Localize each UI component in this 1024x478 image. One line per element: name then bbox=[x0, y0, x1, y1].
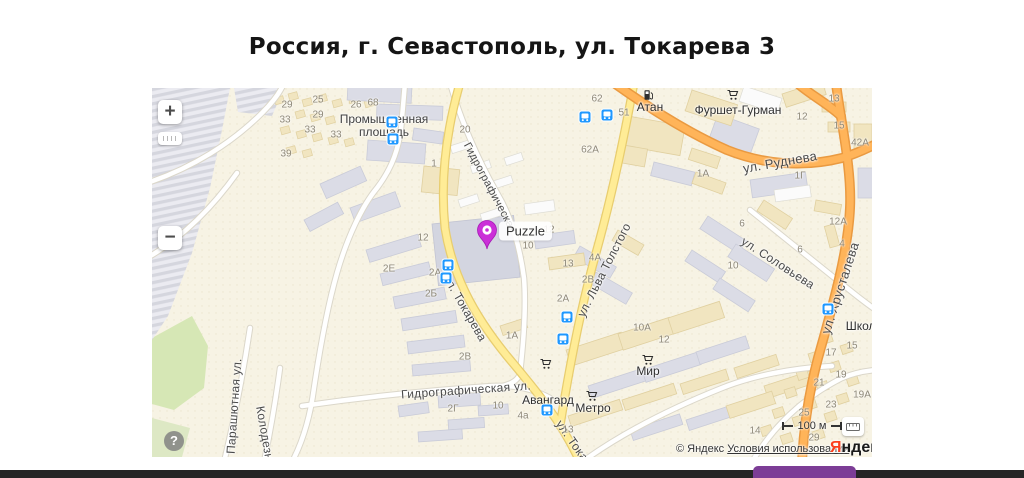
ruler-button[interactable] bbox=[842, 417, 864, 436]
poi-label[interactable]: Школа bbox=[846, 319, 872, 333]
house-number: 13 bbox=[828, 94, 839, 105]
cart-icon[interactable] bbox=[727, 90, 739, 101]
house-number: 4А bbox=[589, 253, 601, 264]
place-label: Промышленная площадь bbox=[340, 113, 429, 139]
bus-stop-icon[interactable] bbox=[541, 404, 554, 417]
street-label: ул. Льва Толстого bbox=[574, 221, 633, 320]
bus-stop-icon[interactable] bbox=[561, 311, 574, 324]
poi-label[interactable]: Атан bbox=[637, 100, 663, 114]
zoom-in-button[interactable]: + bbox=[158, 100, 182, 124]
house-number: 6 bbox=[797, 245, 803, 256]
house-number: 15 bbox=[833, 121, 844, 132]
bus-stop-icon[interactable] bbox=[387, 133, 400, 146]
attribution: © Яндекс Условия использования bbox=[676, 443, 849, 455]
bus-stop-icon[interactable] bbox=[440, 272, 453, 285]
bus-stop-icon[interactable] bbox=[822, 303, 835, 316]
yandex-logo-first-letter: Я bbox=[830, 439, 842, 456]
map[interactable]: ул. Рудневаул. Хрусталеваул. Соловьеваул… bbox=[152, 88, 872, 457]
house-number: 25 bbox=[798, 408, 809, 419]
copyright-text: © Яндекс bbox=[676, 443, 724, 455]
house-number: 1Г bbox=[795, 171, 806, 182]
zoom-level-indicator[interactable] bbox=[158, 132, 182, 145]
house-number: 29 bbox=[281, 100, 292, 111]
house-number: 19А bbox=[853, 390, 871, 401]
street-label: ул. Токарева bbox=[553, 417, 607, 457]
house-number: 1А bbox=[697, 169, 709, 180]
street-label: ул. Руднева bbox=[742, 148, 819, 176]
bus-stop-icon[interactable] bbox=[442, 259, 455, 272]
house-number: 2А bbox=[557, 294, 569, 305]
house-number: 12 bbox=[417, 233, 428, 244]
house-number: 17 bbox=[825, 348, 836, 359]
street-label: ул. Соловьева bbox=[739, 234, 817, 292]
page: Россия, г. Севастополь, ул. Токарева 3 bbox=[0, 0, 1024, 478]
bus-stop-icon[interactable] bbox=[579, 111, 592, 124]
street-label: Гидрографическая ул. bbox=[401, 378, 532, 401]
footer-accent[interactable] bbox=[753, 466, 856, 478]
house-number: 15 bbox=[846, 341, 857, 352]
bus-stop-icon[interactable] bbox=[557, 333, 570, 346]
house-number: 1А bbox=[506, 331, 518, 342]
map-labels-layer: ул. Рудневаул. Хрусталеваул. Соловьеваул… bbox=[152, 88, 872, 457]
house-number: 10 bbox=[727, 261, 738, 272]
ruler-icon bbox=[846, 423, 860, 431]
house-number: 51 bbox=[618, 108, 629, 119]
house-number: 68 bbox=[367, 98, 378, 109]
scale-right-segment bbox=[831, 425, 840, 427]
pin-label[interactable]: Puzzle bbox=[499, 222, 552, 241]
house-number: 2В bbox=[459, 352, 471, 363]
house-number: 2Г bbox=[448, 404, 459, 415]
house-number: 33 bbox=[279, 115, 290, 126]
page-title: Россия, г. Севастополь, ул. Токарева 3 bbox=[0, 34, 1024, 60]
poi-label[interactable]: Фуршет-Гурман bbox=[695, 103, 782, 117]
house-number: 23 bbox=[825, 400, 836, 411]
bus-stop-icon[interactable] bbox=[601, 109, 614, 122]
map-pin[interactable] bbox=[474, 215, 500, 251]
bus-stop-icon[interactable] bbox=[386, 116, 399, 129]
house-number: 1 bbox=[431, 159, 437, 170]
cart-icon[interactable] bbox=[540, 359, 552, 370]
house-number: 33 bbox=[330, 130, 341, 141]
house-number: 19 bbox=[835, 370, 846, 381]
house-number: 13 bbox=[562, 425, 573, 436]
street-label: Колодезная bbox=[253, 405, 279, 457]
house-number: 14 bbox=[749, 426, 760, 437]
house-number: 26 bbox=[350, 100, 361, 111]
house-number: 21 bbox=[813, 378, 824, 389]
house-number: 62А bbox=[581, 145, 599, 156]
zoom-out-button[interactable]: − bbox=[158, 226, 182, 250]
scale-left-segment bbox=[784, 425, 793, 427]
house-number: 4 bbox=[839, 239, 845, 250]
house-number: 25 bbox=[312, 95, 323, 106]
house-number: 2Б bbox=[425, 289, 437, 300]
house-number: 10 bbox=[522, 241, 533, 252]
street-label: Парашютная ул. bbox=[224, 358, 245, 455]
house-number: 42А bbox=[851, 138, 869, 149]
yandex-logo[interactable]: Яндекс bbox=[830, 439, 872, 457]
house-number: 12 bbox=[796, 112, 807, 123]
house-number: 13 bbox=[562, 259, 573, 270]
house-number: 29 bbox=[808, 433, 819, 444]
house-number: 33 bbox=[304, 125, 315, 136]
footer-bar bbox=[0, 470, 1024, 478]
house-number: 10А bbox=[633, 323, 651, 334]
yandex-logo-rest: ндекс bbox=[842, 439, 873, 456]
house-number: 20 bbox=[459, 125, 470, 136]
house-number: 39 bbox=[280, 149, 291, 160]
poi-label[interactable]: Мир bbox=[636, 364, 659, 378]
house-number: 10 bbox=[492, 401, 503, 412]
house-number: 6 bbox=[739, 219, 745, 230]
house-number: 62 bbox=[591, 94, 602, 105]
house-number: 2Е bbox=[383, 264, 395, 275]
house-number: 2В bbox=[582, 275, 594, 286]
scale-bar: 100 м bbox=[782, 420, 842, 432]
zoom-ticks bbox=[163, 136, 177, 141]
scale-label: 100 м bbox=[793, 420, 832, 432]
help-button[interactable]: ? bbox=[164, 431, 184, 451]
house-number: 12 bbox=[658, 335, 669, 346]
house-number: 12А bbox=[829, 217, 847, 228]
poi-label[interactable]: Метро bbox=[575, 401, 610, 415]
cart-icon[interactable] bbox=[586, 391, 598, 402]
house-number: 4а bbox=[517, 411, 528, 422]
fuel-icon[interactable] bbox=[644, 90, 655, 101]
house-number: 29 bbox=[312, 110, 323, 121]
